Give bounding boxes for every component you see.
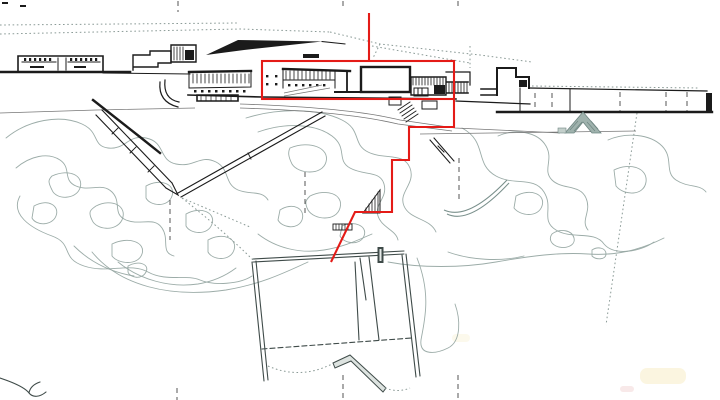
curved-ramp [444,180,509,216]
sunken-field [252,247,420,392]
chevron-ramp [558,112,601,133]
site-plan-page [0,0,720,400]
site-plan-drawing [0,0,720,400]
column-ticks-left [24,58,97,68]
colonnade-ticks-centre [286,71,330,79]
bent-bar [333,355,386,392]
paper-stains [452,334,686,392]
colonnade-ticks-east [413,78,443,85]
colonnade-ticks-west [193,74,249,83]
red-stepped-path [331,99,454,262]
gate-post [378,247,384,263]
building-strip [0,2,712,230]
